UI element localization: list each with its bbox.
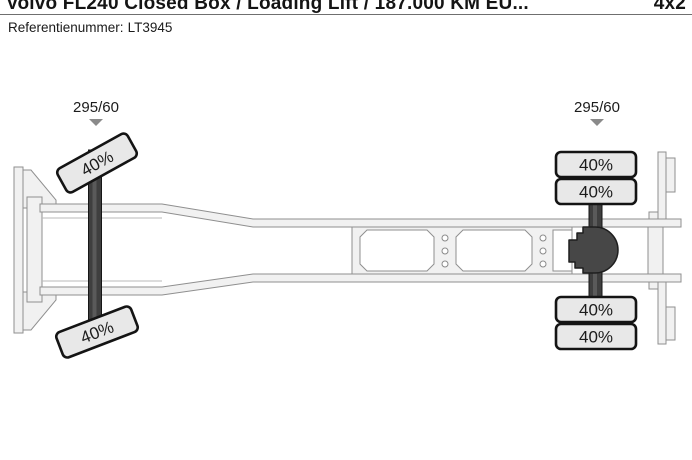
front-tire-size-callout: 295/60: [73, 99, 119, 126]
down-arrow-icon: [590, 119, 604, 126]
rear-crossmember: [648, 227, 663, 274]
rivet-hole: [540, 235, 546, 241]
rear-bracket-top: [666, 158, 675, 192]
tread-label: 40%: [579, 301, 613, 320]
frame-rail-bottom: [40, 274, 681, 295]
front-bumper: [14, 167, 23, 333]
rivet-hole: [540, 261, 546, 267]
down-arrow-icon: [89, 119, 103, 126]
rivet-hole: [442, 235, 448, 241]
rear-bracket-bottom: [666, 307, 675, 340]
frame-opening: [360, 230, 434, 271]
rear-corner-bar-top: [658, 152, 666, 219]
rear-tire-size-label: 295/60: [574, 99, 620, 116]
rear-corner-bar-bottom: [658, 282, 666, 344]
rivet-hole: [442, 248, 448, 254]
rear-tire-size-callout: 295/60: [574, 99, 620, 126]
rear-tire-left-inner: 40%: [556, 179, 636, 204]
front-tire-size-label: 295/60: [73, 99, 119, 116]
differential-housing: [569, 227, 618, 273]
front-mount-plate: [27, 197, 42, 302]
frame-opening: [456, 230, 532, 271]
rear-tire-right-outer: 40%: [556, 324, 636, 349]
rivet-hole: [442, 261, 448, 267]
rear-tire-left-outer: 40%: [556, 152, 636, 177]
rear-tire-right-inner: 40%: [556, 297, 636, 322]
tread-label: 40%: [579, 328, 613, 347]
frame-rail-top: [40, 204, 681, 227]
chassis-diagram: 40% 40% 40% 40% 40% 40% 295/60 2: [0, 0, 692, 460]
rivet-hole: [540, 248, 546, 254]
tread-label: 40%: [579, 156, 613, 175]
tread-label: 40%: [579, 183, 613, 202]
